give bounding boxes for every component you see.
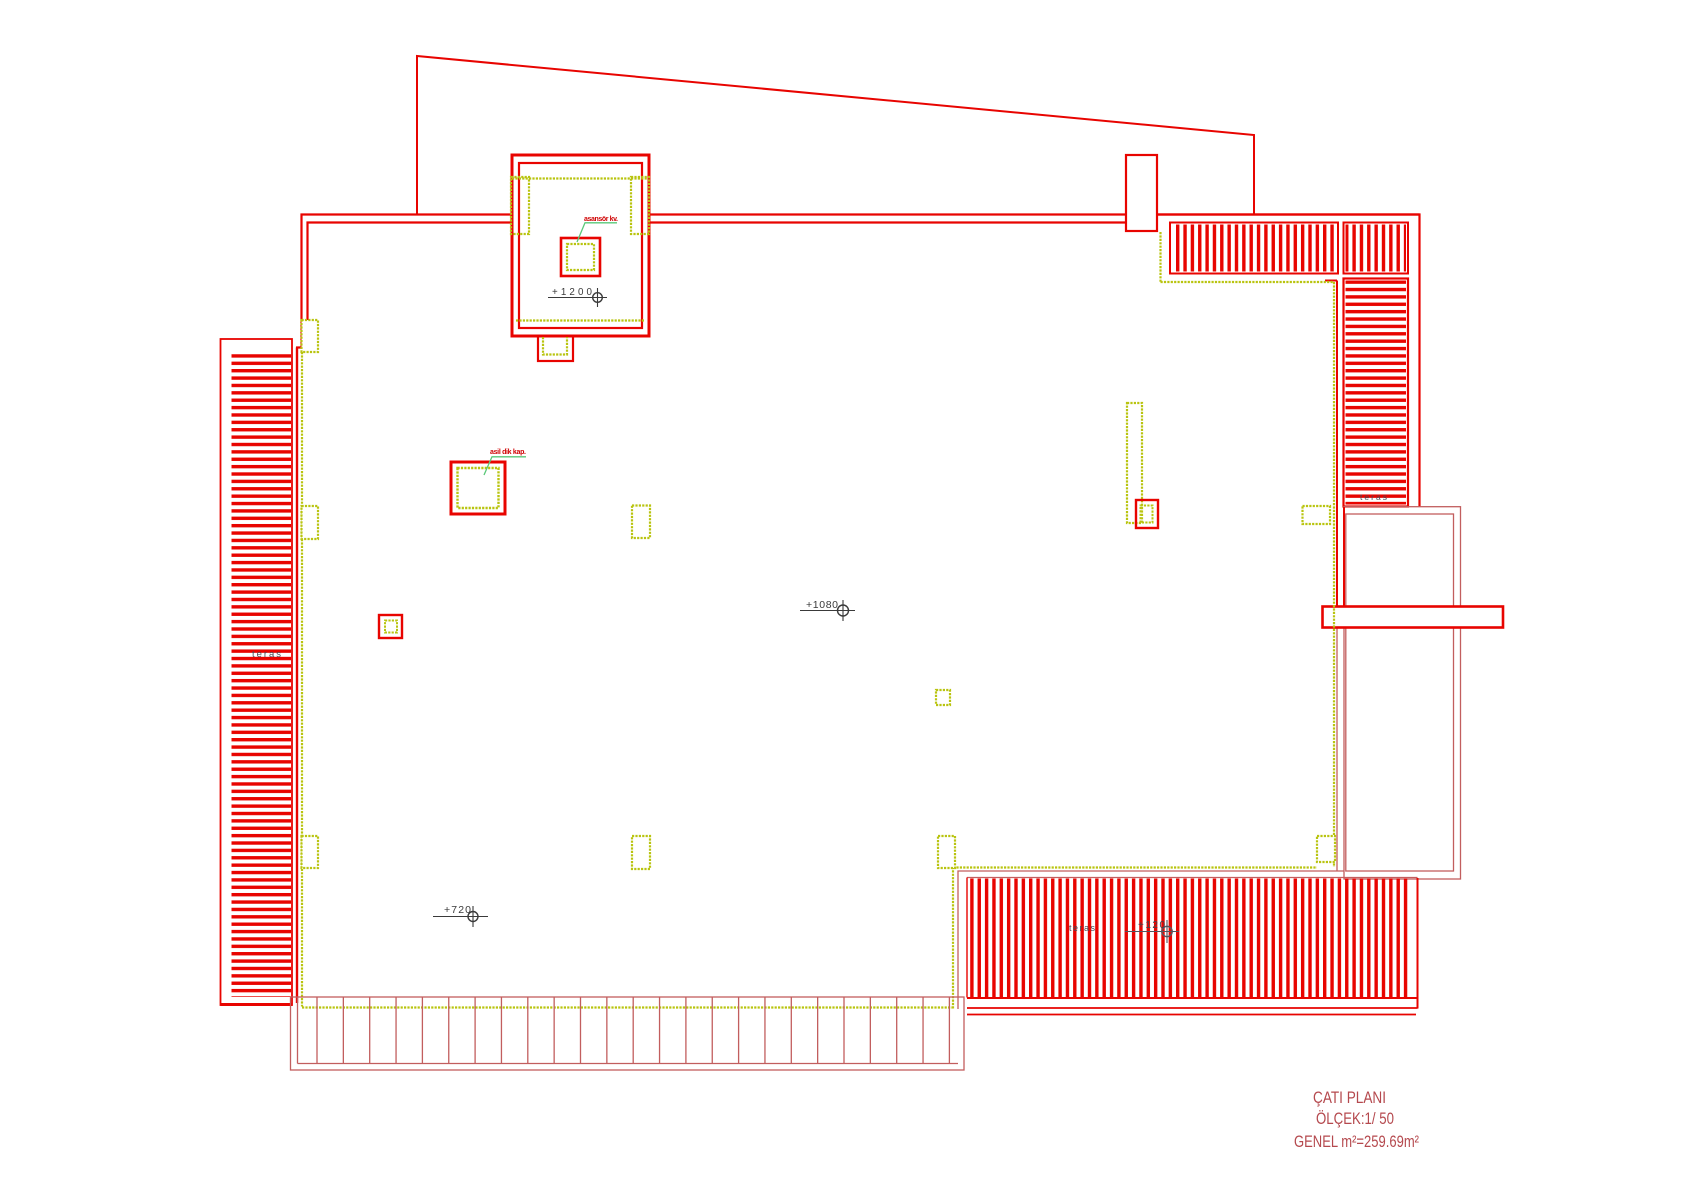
svg-text:teras: teras: [252, 649, 281, 660]
svg-text:ÇATI PLANI: ÇATI PLANI: [1313, 1088, 1386, 1107]
svg-text:+120: +120: [1138, 920, 1165, 931]
svg-text:+720: +720: [444, 904, 471, 916]
svg-text:asil dik kap.: asil dik kap.: [490, 449, 526, 456]
svg-text:asansör kv.: asansör kv.: [584, 216, 618, 223]
svg-text:ÖLÇEK:1/ 50: ÖLÇEK:1/ 50: [1316, 1109, 1394, 1128]
svg-text:GENEL m²=259.69m²: GENEL m²=259.69m²: [1294, 1132, 1419, 1151]
svg-text:+1080: +1080: [806, 599, 838, 611]
svg-text:teras: teras: [1360, 492, 1387, 502]
svg-text:teras: teras: [1069, 923, 1096, 933]
